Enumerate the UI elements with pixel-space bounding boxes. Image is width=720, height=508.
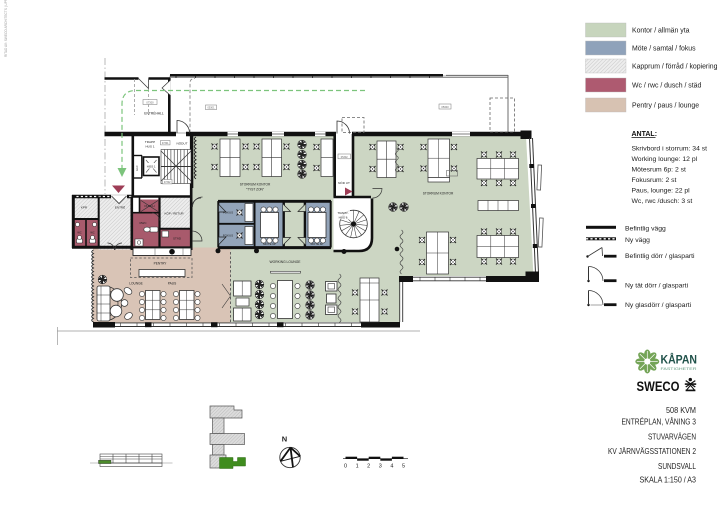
svg-text:SKALA 1:150 / A3: SKALA 1:150 / A3	[640, 475, 697, 484]
svg-text:PENTRY: PENTRY	[154, 262, 168, 266]
svg-text:KPR: KPR	[81, 206, 88, 210]
svg-text:1: 1	[356, 464, 359, 470]
svg-text:STORRUM KONTOR: STORRUM KONTOR	[423, 192, 454, 196]
svg-text:KÅPAN: KÅPAN	[661, 354, 698, 367]
svg-text:STORRUM KONTOR: STORRUM KONTOR	[240, 183, 271, 187]
svg-text:TRAPP: TRAPP	[145, 140, 155, 144]
svg-text:4: 4	[390, 464, 393, 470]
svg-text:MÖTE 6P: MÖTE 6P	[311, 242, 324, 246]
svg-text:HUS 1: HUS 1	[145, 145, 154, 149]
svg-text:STUVARVÄGEN: STUVARVÄGEN	[648, 431, 696, 441]
svg-text:RITAD AV: SWECO ARCHITECTS | U: RITAD AV: SWECO ARCHITECTS | UPPDRAG 123	[4, 0, 8, 57]
svg-text:HISS 1: HISS 1	[147, 165, 156, 169]
svg-text:ENTRÉHALL: ENTRÉHALL	[144, 111, 164, 116]
svg-text:0: 0	[344, 464, 347, 470]
svg-text:5: 5	[402, 464, 405, 470]
svg-text:Kontor / allmän yta: Kontor / allmän yta	[632, 28, 690, 35]
svg-text:Ny vägg: Ny vägg	[625, 237, 650, 244]
svg-text:2: 2	[367, 464, 370, 470]
svg-text:Wc, rwc /dusch: 3 st: Wc, rwc /dusch: 3 st	[632, 198, 693, 205]
svg-text:PAUS: PAUS	[168, 282, 176, 286]
svg-text:05301: 05301	[208, 107, 216, 110]
svg-text:Paus, lounge: 22 pl: Paus, lounge: 22 pl	[632, 188, 691, 195]
svg-text:ENTRÉPLAN, VÅNING 3: ENTRÉPLAN, VÅNING 3	[622, 416, 697, 426]
svg-text:Ny tät dörr / glasparti: Ny tät dörr / glasparti	[625, 283, 689, 290]
svg-text:Wc / rwc / dusch / städ: Wc / rwc / dusch / städ	[632, 83, 701, 90]
svg-text:Working lounge: 12 pl: Working lounge: 12 pl	[632, 156, 698, 163]
svg-text:ELC: ELC	[135, 165, 139, 170]
svg-text:RWC: RWC	[139, 221, 147, 225]
svg-text:WORKING LOUNGE: WORKING LOUNGE	[270, 260, 302, 264]
svg-text:Pentry / paus / lounge: Pentry / paus / lounge	[632, 103, 699, 110]
svg-text:3: 3	[379, 464, 382, 470]
svg-text:Skrivbord i storrum: 34 st: Skrivbord i storrum: 34 st	[632, 146, 708, 153]
svg-text:NÖDUT: NÖDUT	[177, 142, 188, 146]
svg-text:ENTRÉ: ENTRÉ	[115, 205, 125, 210]
svg-text:ANTAL:: ANTAL:	[632, 131, 658, 138]
svg-text:FOKUS: FOKUS	[223, 234, 233, 238]
svg-text:508 KVM: 508 KVM	[666, 406, 696, 415]
svg-text:KÖP / RETUR: KÖP / RETUR	[164, 212, 184, 216]
svg-text:SWECO: SWECO	[637, 379, 680, 394]
svg-text:Kapprum / förråd / kopiering: Kapprum / förråd / kopiering	[632, 63, 718, 71]
svg-text:Befintlig vägg: Befintlig vägg	[625, 226, 666, 233]
svg-text:STÄD: STÄD	[173, 237, 182, 241]
svg-text:N: N	[282, 435, 287, 444]
svg-text:Mötesrum 6p: 2 st: Mötesrum 6p: 2 st	[632, 167, 687, 174]
svg-text:MÖTE 6P: MÖTE 6P	[263, 242, 276, 246]
svg-text:Befintlig dörr / glasparti: Befintlig dörr / glasparti	[625, 253, 695, 260]
svg-text:TRAPP-: TRAPP-	[337, 211, 348, 215]
svg-text:07300: 07300	[146, 101, 154, 105]
svg-text:Fokusrum: 2 st: Fokusrum: 2 st	[632, 177, 677, 184]
svg-text:"TYST ZON": "TYST ZON"	[246, 188, 264, 192]
svg-text:WC: WC	[77, 231, 81, 235]
svg-text:Möte / samtal / fokus: Möte / samtal / fokus	[632, 46, 696, 53]
svg-text:FOKUS: FOKUS	[223, 211, 233, 215]
svg-text:HUS 6: HUS 6	[339, 216, 348, 220]
svg-text:SUNDSVALL: SUNDSVALL	[658, 462, 696, 471]
svg-text:LOUNGE: LOUNGE	[129, 282, 142, 286]
svg-text:DUSCH: DUSCH	[145, 204, 155, 208]
svg-text:FASTIGHETER: FASTIGHETER	[661, 366, 697, 371]
svg-text:07301: 07301	[162, 142, 169, 145]
svg-text:KV JÄRNVÄGSSTATIONEN 2: KV JÄRNVÄGSSTATIONEN 2	[608, 446, 696, 456]
svg-text:WC: WC	[90, 231, 94, 235]
svg-text:07302: 07302	[164, 181, 171, 184]
svg-text:05303: 05303	[441, 105, 449, 109]
svg-text:Ny glasdörr / glasparti: Ny glasdörr / glasparti	[625, 302, 692, 309]
svg-text:05302: 05302	[341, 156, 349, 159]
svg-text:NÖD UT: NÖD UT	[338, 181, 350, 185]
